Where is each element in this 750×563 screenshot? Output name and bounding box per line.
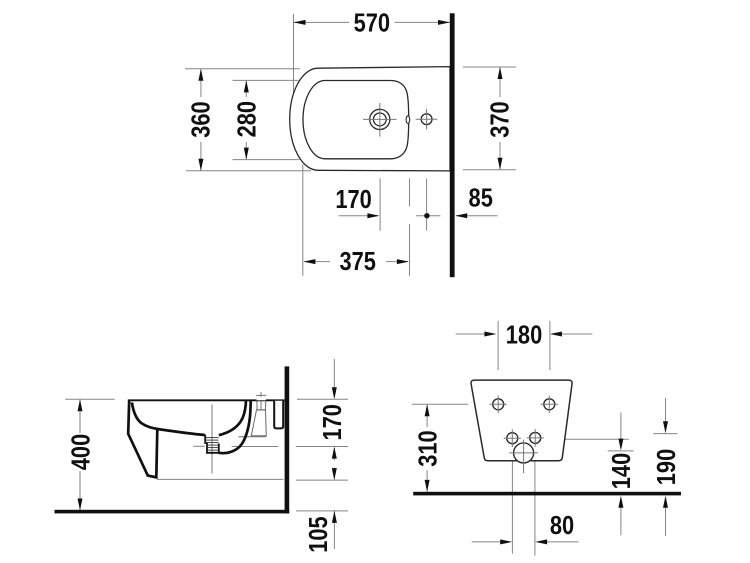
svg-text:280: 280 xyxy=(233,101,262,137)
svg-text:170: 170 xyxy=(335,185,371,214)
svg-text:400: 400 xyxy=(67,434,96,470)
svg-text:310: 310 xyxy=(414,430,443,466)
svg-text:570: 570 xyxy=(354,9,390,38)
svg-text:170: 170 xyxy=(318,404,347,440)
svg-text:190: 190 xyxy=(652,449,681,485)
svg-text:80: 80 xyxy=(550,511,574,540)
svg-text:375: 375 xyxy=(339,247,375,276)
svg-text:370: 370 xyxy=(486,101,515,137)
svg-text:85: 85 xyxy=(469,184,493,213)
svg-text:140: 140 xyxy=(607,453,636,489)
svg-text:360: 360 xyxy=(187,101,216,137)
svg-text:105: 105 xyxy=(304,516,333,552)
svg-text:180: 180 xyxy=(506,321,542,350)
